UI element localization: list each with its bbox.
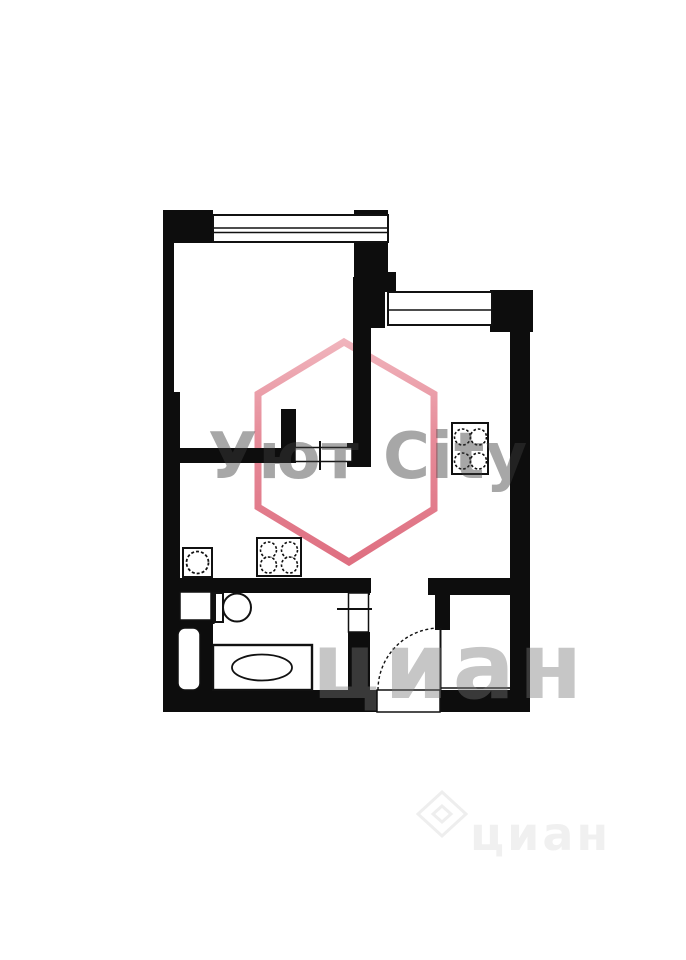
burner-icon (261, 557, 277, 573)
wall-center-wide (353, 277, 385, 328)
toilet-icon (223, 594, 251, 622)
burner-icon (282, 542, 298, 558)
portal-watermark-mid: циан (312, 613, 586, 720)
wall-hall-nook-top (428, 578, 510, 595)
toilet-tank (215, 593, 223, 622)
burner-icon (282, 557, 298, 573)
wall-corner-top-left (163, 210, 213, 243)
wall-niche (180, 592, 211, 620)
wall-left-upper (163, 243, 174, 392)
floor-plan-page: циан Уют City циан (0, 0, 686, 960)
wall-jog (385, 272, 396, 292)
brand-watermark: Уют City (208, 420, 528, 494)
portal-watermark-bottom: циан (470, 807, 611, 861)
wall-corner-top-right (490, 290, 533, 332)
duct-box (178, 628, 200, 690)
window-icon-kitchen-room (388, 292, 492, 325)
bathtub-bowl (232, 655, 292, 681)
wall-left-lower (163, 392, 180, 578)
burner-icon (261, 542, 277, 558)
sink-bowl (187, 552, 209, 574)
floor-plan-drawing: циан Уют City циан (0, 0, 686, 960)
wall-bathroom-top (163, 578, 371, 593)
